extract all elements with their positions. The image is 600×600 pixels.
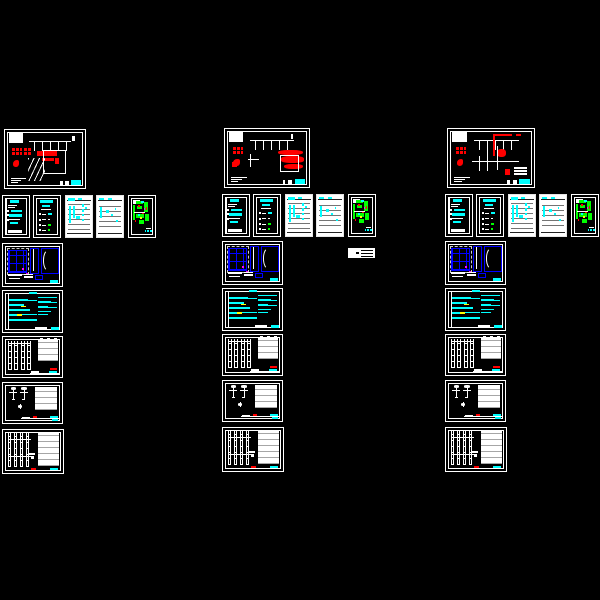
title-cyan-2 <box>590 229 592 231</box>
cyan-block-3 <box>453 221 461 223</box>
note-line-2 <box>11 180 21 181</box>
text-line-3 <box>228 218 239 219</box>
plan-cyan-1 <box>141 201 143 203</box>
sheet-window-details[interactable] <box>445 241 506 285</box>
sheet-main-plan[interactable] <box>447 128 535 188</box>
grid-line-v3 <box>479 156 480 171</box>
plan-red-3 <box>589 206 590 209</box>
cyan-cell-wide <box>76 216 80 220</box>
cyan-stamp-bar <box>50 416 58 418</box>
red-stamp-bar <box>251 466 256 468</box>
cyan-cell-1 <box>326 209 329 212</box>
sheet-riser-diagram[interactable] <box>222 334 283 376</box>
sheet-floor-plan-dark[interactable] <box>571 194 599 237</box>
leader-line <box>248 159 260 160</box>
divider-line <box>41 209 51 210</box>
cyan-title-bar <box>40 200 53 203</box>
red-stamp-bar <box>493 366 499 368</box>
plan-red-3 <box>146 207 147 210</box>
red-stamp-bar <box>476 414 481 416</box>
titleblock-mark-2 <box>283 180 286 183</box>
yellow-highlight-1 <box>464 304 469 306</box>
plan-red-3 <box>366 206 367 209</box>
sheet-schedule-light[interactable] <box>65 195 93 238</box>
cyan-cell-r5 <box>85 207 87 209</box>
schedule-table <box>35 387 57 410</box>
dot-mark <box>356 252 359 254</box>
cyan-cell-r3 <box>302 213 305 215</box>
riser-3 <box>240 431 244 465</box>
cyan-column-2 <box>73 206 75 218</box>
white-stamp-bar <box>451 229 465 233</box>
legend-symbol-4 <box>39 229 41 231</box>
titleblock-cyan-bar <box>270 278 279 281</box>
valve-stem <box>463 402 464 408</box>
text-line-2 <box>451 206 458 207</box>
title-legend-block <box>452 132 467 142</box>
cyan-stamp-bar <box>270 414 278 416</box>
striped-detail-box <box>514 167 527 176</box>
detail-bar-2 <box>229 276 239 278</box>
cyan-cell-2 <box>331 213 333 215</box>
plan-red-1 <box>138 205 140 207</box>
yellow-highlight-2 <box>460 312 465 314</box>
yellow-highlight-1 <box>241 304 246 306</box>
cyan-stamp-bar-2 <box>52 419 58 421</box>
text-line-1 <box>228 204 237 205</box>
pump-base-1 <box>455 397 458 398</box>
cyan-cell-4 <box>116 220 118 222</box>
sheet-riser-diagram-2[interactable] <box>2 429 64 474</box>
cyan-line-extra-1 <box>258 309 271 311</box>
cyan-header-cell <box>328 197 332 199</box>
sheet-cyan-notes[interactable] <box>2 290 63 333</box>
title-legend-block <box>9 133 23 143</box>
title-cyan-1 <box>588 229 590 231</box>
legend-line-4 <box>485 229 489 230</box>
cyan-block-2 <box>9 214 22 216</box>
detail-bar-1 <box>451 272 465 274</box>
sheet-schedule-light[interactable] <box>508 194 536 237</box>
title-line <box>366 227 371 228</box>
cyan-header-cell <box>298 197 301 199</box>
sheet-equipment-details[interactable] <box>222 380 283 422</box>
frame-section <box>250 246 260 272</box>
cyan-cell-r4 <box>302 218 305 220</box>
blue-detail-box <box>35 275 43 280</box>
red-hatch-area <box>455 146 466 155</box>
legend-line-4 <box>262 229 266 230</box>
title-mark <box>22 417 30 419</box>
plan-magenta <box>144 208 145 210</box>
riser-2 <box>14 341 18 370</box>
legend-green-4 <box>48 229 51 231</box>
table-top-dashes <box>40 338 58 340</box>
cyan-column <box>543 206 545 217</box>
pump-base-1 <box>232 397 235 398</box>
footer-rule <box>318 232 342 233</box>
sheet-floor-plan-dark[interactable] <box>128 195 156 238</box>
notch-4 <box>22 315 37 318</box>
titleblock-mark-1 <box>513 180 517 183</box>
sheet-schedule-light-2[interactable] <box>316 194 344 237</box>
riser-1 <box>8 433 12 467</box>
cyan-stamp-bar <box>270 466 278 468</box>
note-line-2 <box>454 179 465 180</box>
footer-rule <box>287 232 311 233</box>
schedule-table <box>258 338 278 359</box>
sheet-notes-dark[interactable] <box>222 194 250 237</box>
red-pipe-vertical <box>493 134 495 155</box>
divider-line <box>261 208 271 209</box>
plan-line <box>354 211 364 212</box>
red-stamp-bar <box>474 466 479 468</box>
detail-bar-1 <box>8 274 22 276</box>
table-top-dashes <box>260 336 278 338</box>
sheet-window-details[interactable] <box>2 243 63 287</box>
blue-detail-box <box>478 273 486 278</box>
cyan-title-tick <box>249 290 257 292</box>
plan-red-4 <box>578 219 580 221</box>
riser-1 <box>228 431 232 465</box>
note-line-3 <box>454 181 462 182</box>
titleblock-mark-2 <box>60 181 62 184</box>
title-cyan-1 <box>145 230 147 232</box>
plan-cyan-2 <box>138 214 140 216</box>
legend-line-3 <box>42 225 46 226</box>
valve-stem <box>240 402 241 408</box>
schedule-table <box>478 385 500 408</box>
cyan-title <box>99 198 104 200</box>
pump-base-2 <box>242 397 245 398</box>
legend-line-3 <box>485 224 489 225</box>
riser-1 <box>451 339 455 368</box>
cyan-stamp-bar <box>492 369 500 371</box>
pump-arm-1 <box>9 392 17 393</box>
margin-line <box>449 197 450 234</box>
legend-green-3 <box>491 223 495 225</box>
legend-white-2 <box>268 218 271 220</box>
note-line-2 <box>231 179 242 180</box>
red-stamp-bar <box>31 468 36 470</box>
title-line <box>146 228 151 229</box>
cyan-cell-r2 <box>302 208 305 210</box>
title-legend-block <box>229 132 243 142</box>
notch-1 <box>248 296 257 298</box>
legend-line-2 <box>262 218 266 219</box>
title-mark <box>242 415 250 417</box>
sheet-cyan-notes[interactable] <box>222 288 283 331</box>
cyan-cell-r5 <box>305 206 307 208</box>
legend-line-2 <box>485 218 489 219</box>
white-stamp-bar <box>8 230 22 234</box>
title-cyan-1 <box>365 229 367 231</box>
legend-line-2 <box>42 219 46 220</box>
cyan-cell-3 <box>115 208 117 210</box>
sheet-legend-dark[interactable] <box>33 195 61 238</box>
titleblock-white-bar <box>255 325 267 328</box>
plan-green-wall-7 <box>139 220 143 224</box>
riser-tie-line <box>451 341 475 342</box>
tick-3 <box>7 219 9 221</box>
titleblock-mark-1 <box>65 181 69 184</box>
cyan-cell-r2 <box>525 208 528 210</box>
sheet-floor-plan-dark[interactable] <box>348 194 376 237</box>
cyan-cell-r4 <box>525 218 528 220</box>
title-mark <box>465 415 473 417</box>
legend-cyan-1 <box>268 212 272 214</box>
magenta-dot-1 <box>465 266 467 268</box>
legend-line-3 <box>262 224 266 225</box>
plan-green-wall-6 <box>145 214 150 221</box>
titleblock-cyan-bar <box>50 280 59 283</box>
floating-titleblock-fragment[interactable] <box>348 248 375 258</box>
valve-stem <box>20 404 21 410</box>
plan-line <box>134 212 144 213</box>
title-cyan-2 <box>367 229 369 231</box>
titleblock-cyan-bar <box>71 180 81 184</box>
red-equipment-glyph <box>457 159 464 165</box>
margin-line <box>6 198 7 235</box>
cyan-column <box>100 207 102 218</box>
sheet-main-plan[interactable] <box>224 128 310 188</box>
detail-outline <box>280 155 300 173</box>
sheet-notes-dark[interactable] <box>2 195 30 238</box>
cyan-subtitle-bar <box>485 204 493 206</box>
cyan-column-1 <box>512 205 515 222</box>
margin-line <box>226 197 227 234</box>
titleblock-cyan-bar <box>295 179 305 183</box>
riser-4 <box>27 341 31 370</box>
sheet-equipment-details[interactable] <box>445 380 506 422</box>
sheet-equipment-details[interactable] <box>2 382 63 424</box>
pipe-branch-ticks <box>255 140 292 150</box>
cyan-stamp-bar <box>493 414 501 416</box>
riser-2 <box>234 431 238 465</box>
legend-symbol-2 <box>39 219 41 221</box>
titleblock-mark-2 <box>507 180 510 183</box>
fixture-cluster-2 <box>31 456 34 459</box>
cyan-line-extra-2 <box>38 314 47 316</box>
notch-5 <box>271 297 277 299</box>
red-glyph-2 <box>232 162 237 167</box>
titleblock-cyan-bar <box>493 278 502 281</box>
schedule-table <box>481 431 503 464</box>
notch-3 <box>473 307 479 309</box>
cyan-block-2 <box>229 213 242 215</box>
red-hatch-area-2 <box>23 147 30 156</box>
cyan-header-cell <box>78 198 81 200</box>
riser-tie-line <box>228 341 252 342</box>
margin-line <box>256 197 257 235</box>
footer-rule <box>98 233 122 234</box>
cyan-header-cell <box>521 197 524 199</box>
cyan-title <box>68 198 75 200</box>
text-line-1 <box>451 204 460 205</box>
riser-2 <box>457 431 461 465</box>
titleblock-cyan-bar <box>271 325 279 327</box>
note-line-1 <box>454 177 470 178</box>
cyan-line-extra-2 <box>258 312 267 314</box>
cyan-column-2 <box>516 205 518 217</box>
text-line-2 <box>8 207 15 208</box>
tick-2 <box>450 213 452 215</box>
header-rule <box>318 199 342 200</box>
legend-line-1 <box>485 213 489 214</box>
magenta-dot-1 <box>22 268 24 270</box>
yellow-highlight-1 <box>21 306 26 308</box>
tie-line-2 <box>451 454 474 455</box>
sheet-riser-diagram-2[interactable] <box>222 427 284 472</box>
notch-5 <box>494 297 500 299</box>
sheet-riser-diagram[interactable] <box>2 336 63 378</box>
tie-line-1 <box>451 437 474 438</box>
cyan-cell-1 <box>549 209 552 212</box>
cyan-title <box>319 197 324 199</box>
margin-line <box>479 197 480 235</box>
cyan-cell-2 <box>111 214 113 216</box>
legend-symbol-3 <box>39 224 41 226</box>
riser-4 <box>470 339 474 368</box>
legend-line-4 <box>42 230 46 231</box>
yellow-highlight-2 <box>237 312 242 314</box>
sheet-notes-dark[interactable] <box>445 194 473 237</box>
riser-1 <box>8 341 12 370</box>
cyan-title-tick <box>29 292 37 294</box>
cyan-heading-bar <box>453 199 462 201</box>
tie-line-1 <box>228 437 251 438</box>
riser-3 <box>241 339 245 368</box>
cyan-cell-r2 <box>82 209 85 211</box>
stripe-lines <box>361 249 373 257</box>
schedule-table <box>255 385 277 408</box>
sheet-schedule-light-2[interactable] <box>96 195 124 238</box>
legend-symbol-4 <box>259 228 261 230</box>
title-cyan-3 <box>370 229 372 231</box>
titleblock-white-bar <box>35 327 47 330</box>
magenta-dot-1 <box>242 266 244 268</box>
sheet-main-plan[interactable] <box>4 129 86 189</box>
cyan-stamp-bar <box>269 369 277 371</box>
notch-1 <box>471 296 480 298</box>
plan-magenta <box>364 207 365 209</box>
legend-symbol-3 <box>482 223 484 225</box>
pump-arm-1 <box>452 390 460 391</box>
grid-line-v1 <box>487 145 488 172</box>
cyan-block-1 <box>11 210 22 213</box>
cyan-block-3 <box>10 222 18 224</box>
schedule-table <box>38 340 58 361</box>
cyan-cell-1 <box>106 210 109 213</box>
plan-cyan-2 <box>358 213 360 215</box>
plan-cyan-2 <box>581 213 583 215</box>
blue-detail-box <box>255 273 263 278</box>
legend-green-3 <box>268 223 272 225</box>
notch-5 <box>51 299 57 301</box>
riser-1 <box>451 431 455 465</box>
titleblock-cyan-bar <box>494 325 502 327</box>
red-stamp-bar <box>50 368 56 370</box>
tie-line-2 <box>8 456 31 457</box>
plan-red-4 <box>355 219 357 221</box>
tick-3 <box>450 218 452 220</box>
striped-detail <box>24 274 33 279</box>
riser-tie-line <box>8 343 32 344</box>
riser-1 <box>228 339 232 368</box>
note-line-1 <box>231 177 247 178</box>
riser-3 <box>463 431 467 465</box>
red-fixture-blob <box>497 149 506 157</box>
sheet-schedule-light[interactable] <box>285 194 313 237</box>
footer-rule <box>541 232 565 233</box>
riser-2 <box>234 339 238 368</box>
cyan-subtitle-bar <box>42 205 50 207</box>
text-line-1 <box>8 205 17 206</box>
red-pipe-horizontal <box>493 134 513 136</box>
title-mark <box>31 371 39 373</box>
header-rule <box>541 199 565 200</box>
legend-symbol-2 <box>482 218 484 220</box>
cyan-cell-r3 <box>82 214 85 216</box>
pump-arm-2 <box>240 390 248 391</box>
cyan-column-2 <box>293 205 295 217</box>
plan-magenta <box>587 207 588 209</box>
red-tick <box>516 134 521 136</box>
riser-3 <box>464 339 468 368</box>
cyan-cell-2 <box>554 213 556 215</box>
plan-yellow <box>360 216 362 218</box>
cyan-block-3 <box>230 221 238 223</box>
diagonal-hatch <box>28 158 45 181</box>
legend-cyan-1 <box>48 213 52 215</box>
header-rule <box>98 200 122 201</box>
red-rect <box>505 169 510 175</box>
note-line-3 <box>11 182 18 183</box>
red-stamp-bar <box>33 416 38 418</box>
notch-4 <box>242 313 257 316</box>
sheet-window-details[interactable] <box>222 241 283 285</box>
fixture-cluster-2 <box>251 454 254 457</box>
sheet-riser-diagram[interactable] <box>445 334 506 376</box>
sheet-legend-dark[interactable] <box>476 194 504 237</box>
plan-yellow <box>140 217 142 219</box>
tick-1 <box>450 209 452 211</box>
schedule-table <box>481 338 501 359</box>
legend-white-2 <box>491 218 494 220</box>
plan-red-1 <box>581 204 583 206</box>
pump-arm-2 <box>20 392 28 393</box>
title-cyan-3 <box>593 229 595 231</box>
plan-red-4 <box>135 220 137 222</box>
note-line-1 <box>11 178 26 179</box>
cyan-title-bar <box>260 199 273 202</box>
title-line <box>589 227 594 228</box>
sheet-riser-diagram-2[interactable] <box>445 427 507 472</box>
sheet-legend-dark[interactable] <box>253 194 281 237</box>
riser-2 <box>14 433 18 467</box>
tie-line-1 <box>8 439 31 440</box>
sheet-cyan-notes[interactable] <box>445 288 506 331</box>
cyan-block-1 <box>454 209 465 212</box>
cad-canvas[interactable] <box>0 0 600 600</box>
cyan-heading-bar <box>230 199 239 201</box>
plan-line <box>577 211 587 212</box>
plan-cyan-1 <box>584 200 586 202</box>
sheet-schedule-light-2[interactable] <box>539 194 567 237</box>
frame-centerline <box>476 247 477 269</box>
tick-3 <box>227 218 229 220</box>
cyan-title-tick <box>472 290 480 292</box>
